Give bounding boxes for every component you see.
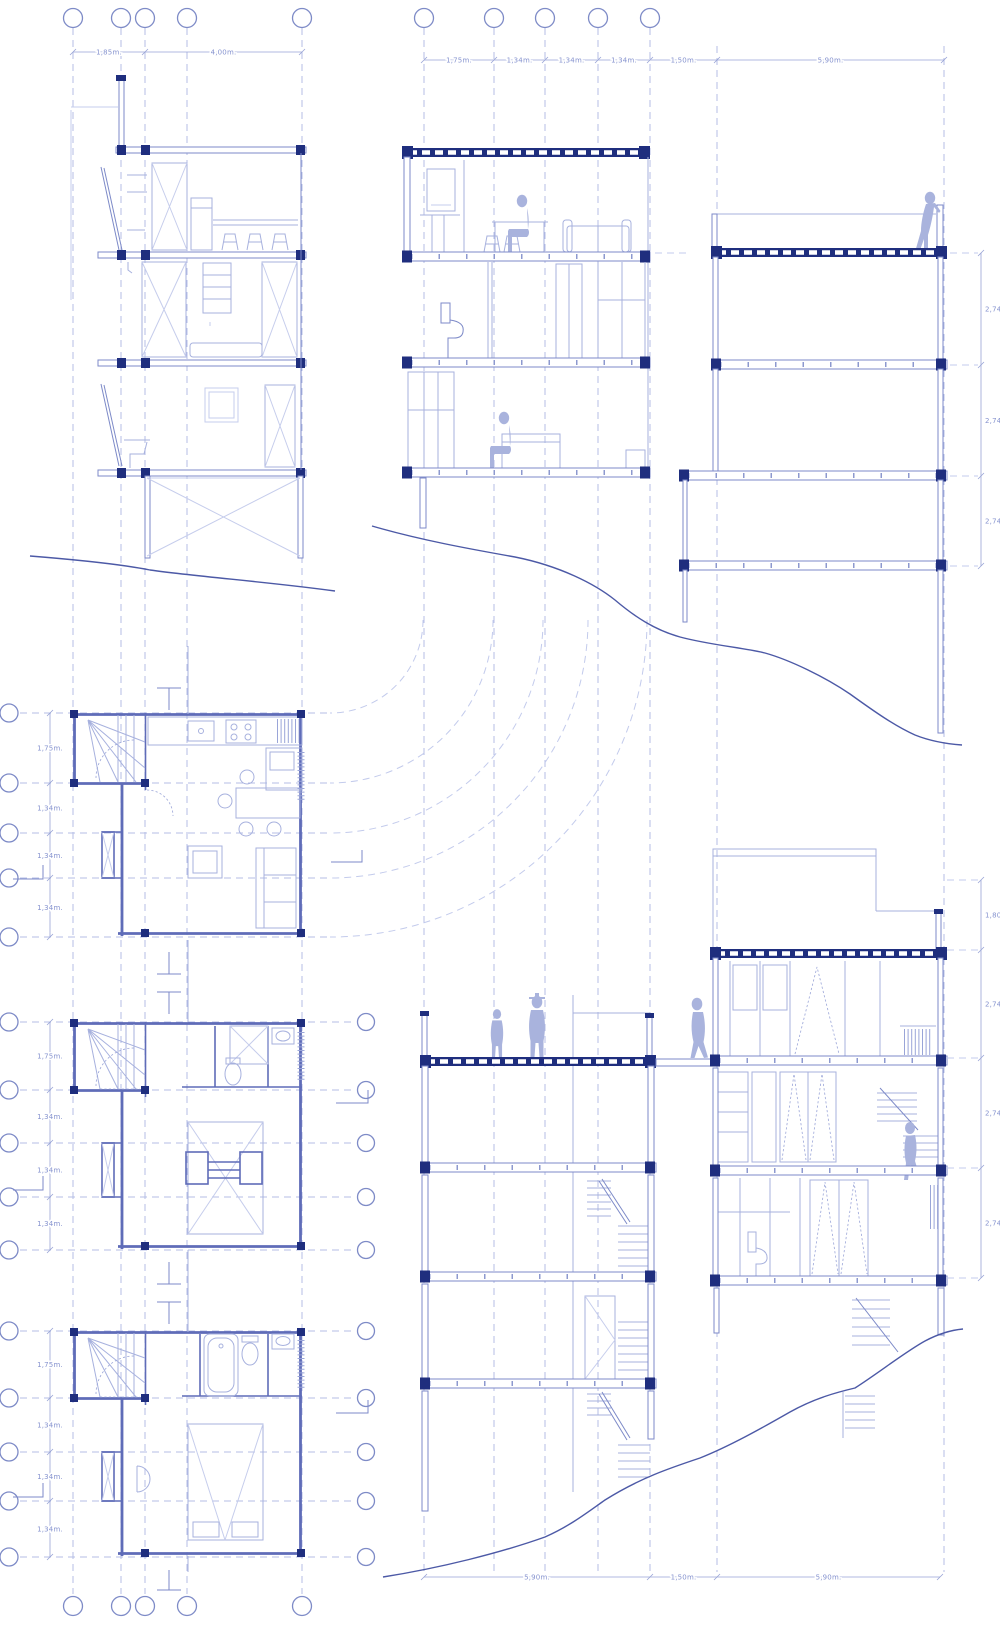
grid-bubble bbox=[358, 1549, 375, 1566]
dimension-column: 1,75m.1,34m.1,34m.1,34m. bbox=[37, 1328, 63, 1560]
dim-label: 2,74m. bbox=[985, 1219, 1000, 1227]
wc-level bbox=[718, 1178, 944, 1276]
dim-label: 1,75m. bbox=[446, 56, 472, 64]
slab-body bbox=[403, 252, 650, 261]
grid-bubble bbox=[358, 1135, 375, 1152]
dim-label: 1,34m. bbox=[37, 852, 63, 860]
section-upper-right bbox=[655, 192, 978, 733]
dim-label: 2,74m. bbox=[985, 417, 1000, 425]
dim-label: 5,90m. bbox=[524, 1573, 550, 1581]
closet-wall-top bbox=[730, 961, 936, 1056]
person-child-terrace bbox=[491, 1009, 503, 1057]
section-lower-right bbox=[710, 849, 978, 1438]
column-node bbox=[936, 1275, 946, 1287]
column-node bbox=[420, 1162, 430, 1174]
floor-slab bbox=[402, 467, 650, 479]
grid-bubble bbox=[112, 1597, 131, 1616]
dim-label: 1,34m. bbox=[37, 1113, 63, 1121]
grid-bubble bbox=[0, 774, 18, 792]
dim-label: 4,00m. bbox=[211, 48, 237, 56]
dim-label: 1,50m. bbox=[671, 1573, 697, 1581]
grid-bubble bbox=[0, 1188, 18, 1206]
column-node bbox=[936, 1165, 946, 1177]
dim-label: 2,74m. bbox=[985, 1109, 1000, 1117]
column-node bbox=[645, 1162, 655, 1174]
slab-body bbox=[421, 1272, 656, 1281]
dim-label: 1,75m. bbox=[37, 744, 63, 752]
floor-slab bbox=[420, 1271, 656, 1283]
projection-arc bbox=[330, 620, 543, 833]
floor-slab bbox=[710, 1055, 947, 1067]
section-upper-left bbox=[71, 75, 306, 558]
column-node bbox=[710, 1055, 720, 1067]
dimension-row: 5,90m.1,50m.5,90m. bbox=[421, 1573, 943, 1581]
grid-bubble bbox=[358, 1242, 375, 1259]
dimension-column: 1,80m.2,74m.2,74m.2,74m. bbox=[978, 877, 1000, 1281]
grid-bubble bbox=[178, 9, 197, 28]
grid-bubble bbox=[293, 1597, 312, 1616]
stair-flight-mid bbox=[585, 1296, 650, 1379]
projection-arc bbox=[330, 620, 588, 878]
column-node bbox=[402, 251, 412, 263]
grid-bubble bbox=[0, 704, 18, 722]
grid-bubble bbox=[64, 1597, 83, 1616]
column-node bbox=[420, 1378, 430, 1390]
floor-slab bbox=[679, 560, 947, 572]
grid-bubble bbox=[0, 1492, 18, 1510]
slab-body bbox=[680, 471, 947, 480]
column-node bbox=[645, 1378, 655, 1390]
upper-floor-interior bbox=[101, 163, 298, 250]
kitchen-level bbox=[420, 160, 631, 252]
terrain-lines bbox=[30, 526, 963, 1577]
floor-slab bbox=[402, 357, 650, 369]
stair-flight-upper bbox=[587, 1179, 650, 1266]
dim-label: 1,50m. bbox=[671, 56, 697, 64]
grid-bubble bbox=[136, 9, 155, 28]
slab-body bbox=[403, 358, 650, 367]
column-node bbox=[640, 251, 650, 263]
stair-winder bbox=[88, 1024, 145, 1089]
column-node bbox=[640, 467, 650, 479]
grid-bubble bbox=[293, 9, 312, 28]
dining bbox=[218, 770, 300, 836]
grid-bubble bbox=[64, 9, 83, 28]
grid-bubble bbox=[0, 824, 18, 842]
dim-label: 1,34m. bbox=[37, 1473, 63, 1481]
column-node bbox=[640, 357, 650, 369]
person-sitting-bench bbox=[490, 412, 511, 469]
grid-bubble bbox=[0, 1548, 18, 1566]
section-upper-middle bbox=[402, 146, 650, 528]
floor-slab bbox=[710, 1165, 947, 1177]
dim-label: 2,74m. bbox=[985, 517, 1000, 525]
bath-level bbox=[441, 262, 645, 358]
living-level bbox=[408, 372, 645, 469]
lower-floor-interior bbox=[101, 384, 295, 468]
grid-bubble bbox=[0, 1322, 18, 1340]
dim-label: 1,85m. bbox=[96, 48, 122, 56]
grid-bubble bbox=[485, 9, 504, 28]
person-walking-bridge bbox=[691, 998, 709, 1058]
column-node bbox=[645, 1271, 655, 1283]
dim-label: 1,34m. bbox=[37, 1166, 63, 1174]
kitchen bbox=[148, 717, 302, 790]
grid-bubble bbox=[178, 1597, 197, 1616]
sofa bbox=[563, 220, 631, 252]
dim-label: 1,75m. bbox=[37, 1052, 63, 1060]
dim-label: 1,34m. bbox=[611, 56, 637, 64]
grid-bubble bbox=[415, 9, 434, 28]
dimension-column: 2,74m.2,74m.2,74m. bbox=[978, 250, 1000, 569]
dim-label: 1,34m. bbox=[507, 56, 533, 64]
middle-floor-interior bbox=[128, 262, 297, 357]
stair-winder bbox=[88, 1333, 145, 1397]
projection-arc bbox=[330, 620, 647, 937]
bed bbox=[186, 1122, 263, 1234]
blueprint-sheet: 1,85m.4,00m.1,75m.1,34m.1,34m.1,34m.1,50… bbox=[0, 0, 1000, 1636]
dim-label: 2,74m. bbox=[985, 305, 1000, 313]
dim-label: 5,90m. bbox=[818, 56, 844, 64]
grid-bubble bbox=[358, 1189, 375, 1206]
dim-label: 1,34m. bbox=[37, 1220, 63, 1228]
floor-slab bbox=[402, 251, 650, 263]
column-node bbox=[420, 1271, 430, 1283]
dimension-layer: 1,85m.4,00m.1,75m.1,34m.1,34m.1,34m.1,50… bbox=[37, 48, 1000, 1581]
grid-bubble bbox=[0, 928, 18, 946]
section-lower-left bbox=[420, 993, 711, 1511]
dim-label: 1,34m. bbox=[37, 804, 63, 812]
dim-label: 1,75m. bbox=[37, 1361, 63, 1369]
floor-slab bbox=[711, 359, 947, 371]
dim-label: 1,34m. bbox=[37, 1525, 63, 1533]
grid-bubble bbox=[0, 1389, 18, 1407]
stair-winder bbox=[88, 715, 145, 782]
grid-bubble bbox=[358, 1390, 375, 1407]
living-room bbox=[188, 846, 296, 928]
column-node bbox=[710, 1165, 720, 1177]
dimension-column: 1,75m.1,34m.1,34m.1,34m. bbox=[37, 710, 63, 940]
projection-arc bbox=[330, 620, 493, 783]
dim-label: 5,90m. bbox=[816, 1573, 842, 1581]
stair-flight-lower bbox=[587, 1392, 650, 1477]
grid-bubble bbox=[0, 1081, 18, 1099]
grid-bubble bbox=[0, 1241, 18, 1259]
dim-label: 1,34m. bbox=[37, 904, 63, 912]
floor-slab bbox=[420, 1162, 656, 1174]
blueprint-drawing: 1,85m.4,00m.1,75m.1,34m.1,34m.1,34m.1,50… bbox=[0, 0, 1000, 1636]
grid-bubble bbox=[136, 1597, 155, 1616]
dim-label: 1,34m. bbox=[37, 1421, 63, 1429]
bay-window bbox=[102, 1143, 122, 1197]
floor-slab bbox=[420, 1378, 656, 1390]
slab-body bbox=[421, 1163, 656, 1172]
bathroom bbox=[182, 1334, 302, 1396]
grid-bubble bbox=[358, 1444, 375, 1461]
grid-bubble bbox=[589, 9, 608, 28]
grid-bubble bbox=[358, 1323, 375, 1340]
projection-arc bbox=[330, 620, 423, 713]
grid-bubble bbox=[0, 1443, 18, 1461]
bay-window bbox=[102, 1452, 122, 1501]
slab-body bbox=[403, 468, 650, 477]
grid-bubble bbox=[358, 1493, 375, 1510]
slab-body bbox=[680, 561, 947, 570]
slab-body bbox=[712, 360, 947, 369]
dimension-row: 1,75m.1,34m.1,34m.1,34m.1,50m.5,90m. bbox=[421, 56, 947, 64]
floor-slab bbox=[679, 470, 947, 482]
slab-body bbox=[421, 1379, 656, 1388]
base-cross-brace bbox=[145, 476, 303, 558]
grid-bubble bbox=[0, 1013, 18, 1031]
grid-bubble bbox=[358, 1014, 375, 1031]
grid-bubble bbox=[112, 9, 131, 28]
dim-label: 1,34m. bbox=[559, 56, 585, 64]
section-cut-markers bbox=[13, 646, 368, 1590]
bed bbox=[188, 1424, 263, 1540]
dimension-column: 1,75m.1,34m.1,34m.1,34m. bbox=[37, 1019, 63, 1253]
column-node bbox=[936, 1055, 946, 1067]
grid-bubble bbox=[0, 1134, 18, 1152]
dim-label: 2,74m. bbox=[985, 1000, 1000, 1008]
grid-bubble bbox=[536, 9, 555, 28]
stair-below bbox=[843, 1298, 898, 1438]
bathroom bbox=[182, 1026, 302, 1087]
grid-bubble bbox=[358, 1082, 375, 1099]
column-node bbox=[710, 1275, 720, 1287]
floor-slab bbox=[710, 1275, 947, 1287]
column-node bbox=[402, 467, 412, 479]
dim-label: 1,80m. bbox=[985, 911, 1000, 919]
person-adult-terrace bbox=[529, 993, 545, 1057]
bay-window bbox=[102, 832, 122, 878]
grid-bubble bbox=[0, 869, 18, 887]
grid-bubble bbox=[641, 9, 660, 28]
column-node bbox=[402, 357, 412, 369]
